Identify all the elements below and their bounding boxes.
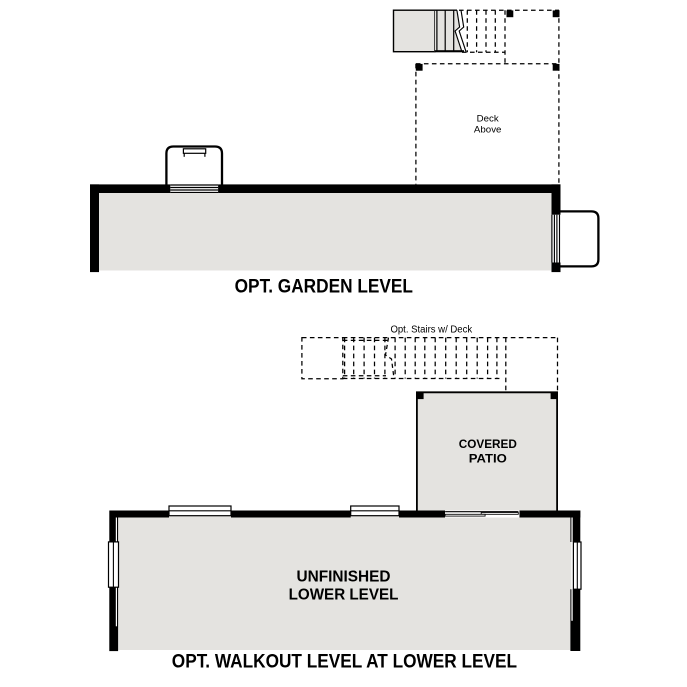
- svg-text:OPT. GARDEN LEVEL: OPT. GARDEN LEVEL: [235, 277, 414, 298]
- svg-text:Above: Above: [474, 124, 502, 134]
- svg-text:PATIO: PATIO: [469, 451, 507, 465]
- svg-text:UNFINISHED: UNFINISHED: [297, 569, 391, 586]
- svg-text:Deck: Deck: [477, 113, 500, 123]
- svg-text:COVERED: COVERED: [459, 437, 517, 451]
- svg-text:OPT. WALKOUT LEVEL AT LOWER LE: OPT. WALKOUT LEVEL AT LOWER LEVEL: [172, 652, 518, 673]
- svg-text:Opt. Stairs w/ Deck: Opt. Stairs w/ Deck: [390, 325, 473, 336]
- svg-text:LOWER LEVEL: LOWER LEVEL: [289, 587, 399, 604]
